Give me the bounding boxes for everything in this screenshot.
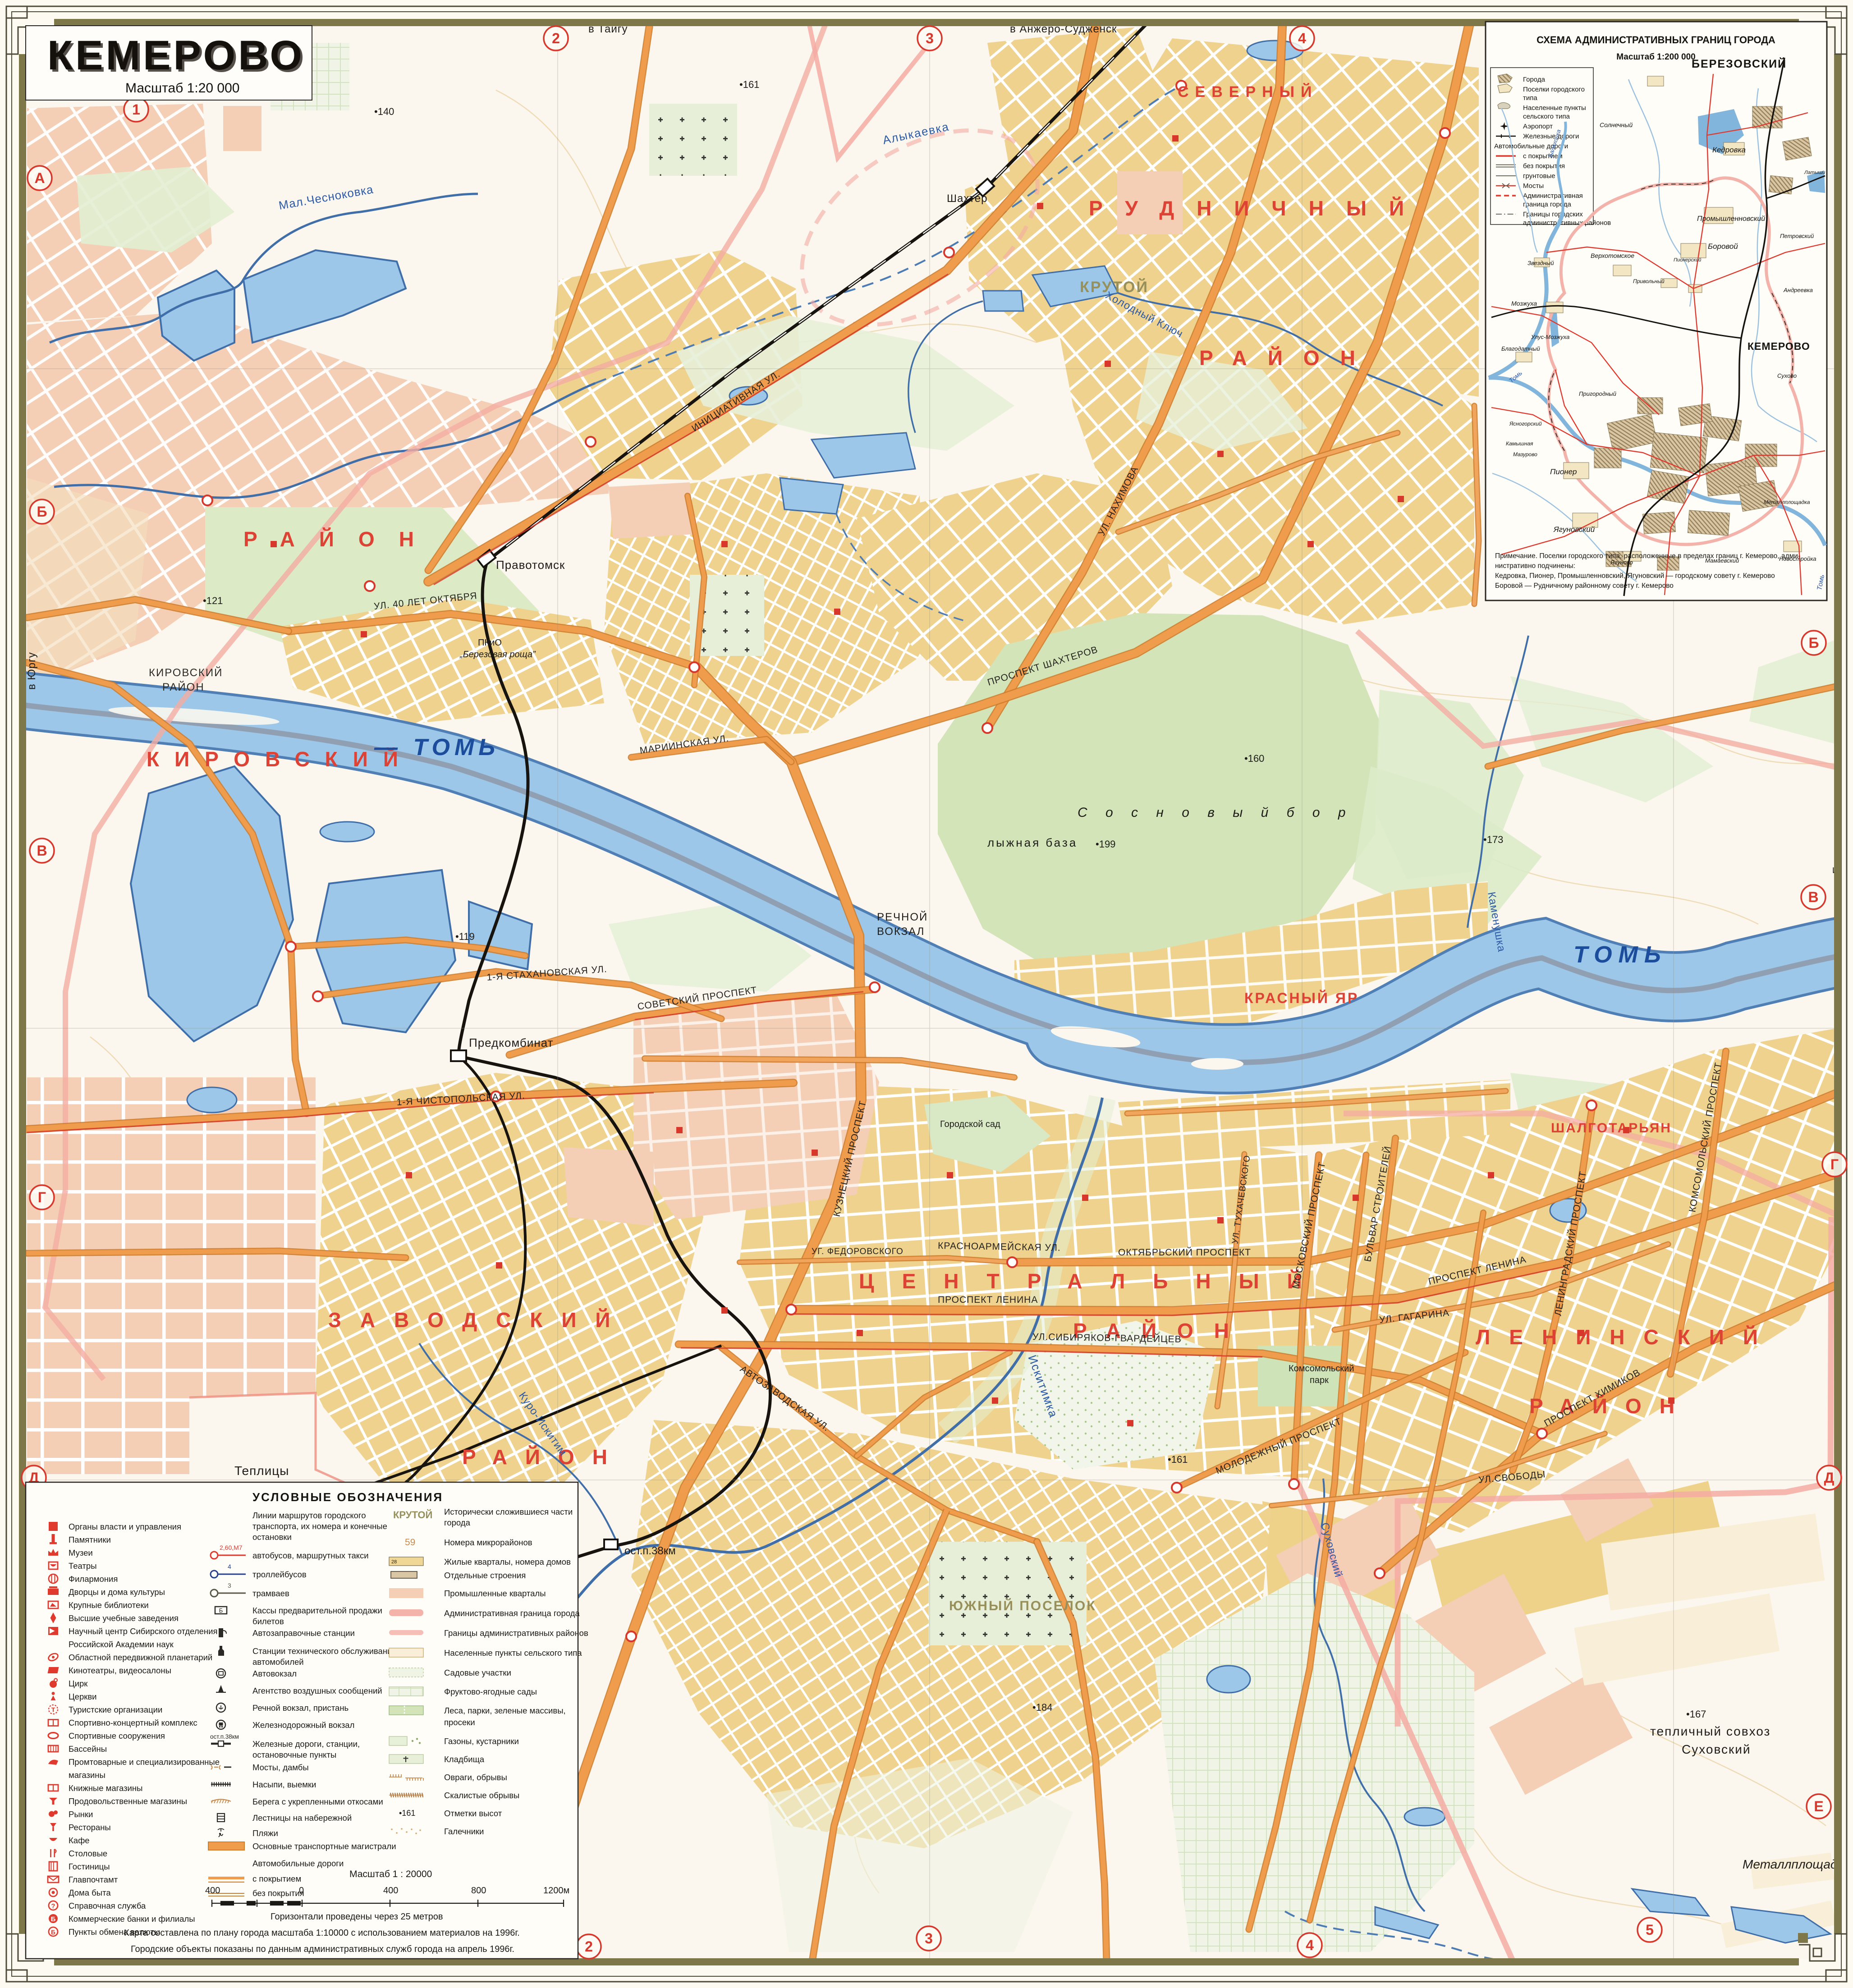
svg-text:•121: •121 [203,595,223,606]
svg-text:4: 4 [1306,1937,1314,1953]
svg-text:Благодатный: Благодатный [1501,345,1540,352]
svg-text:административных районов: административных районов [1523,219,1611,227]
svg-text:Латыши: Латыши [1804,170,1825,175]
svg-text:В: В [37,843,47,859]
svg-text:Шахтер: Шахтер [947,192,988,205]
svg-text:Т: Т [51,1706,55,1713]
svg-text:Городской сад: Городской сад [940,1119,1000,1129]
svg-text:Туристские организации: Туристские организации [69,1705,162,1714]
svg-text:Областной передвижной планетар: Областной передвижной планетарий [69,1653,212,1662]
svg-text:УСЛОВНЫЕ ОБОЗНАЧЕНИЯ: УСЛОВНЫЕ ОБОЗНАЧЕНИЯ [252,1490,443,1504]
svg-text:Населенные пункты сельского ти: Населенные пункты сельского типа [444,1648,582,1658]
svg-text:РАЙОН: РАЙОН [1199,346,1376,370]
svg-text:Масштаб 1 : 20000: Масштаб 1 : 20000 [349,1869,432,1879]
svg-text:Станции технического обслужива: Станции технического обслуживания [252,1646,396,1656]
svg-text:КЕМЕРОВО: КЕМЕРОВО [47,32,305,78]
svg-text:лыжная база: лыжная база [987,836,1078,849]
svg-text:„Березовая роща”: „Березовая роща” [459,650,536,660]
svg-text:Д: Д [1824,1470,1835,1486]
svg-text:2,60,М7: 2,60,М7 [220,1544,243,1551]
svg-text:Линии маршрутов городского: Линии маршрутов городского [252,1511,366,1520]
svg-text:Дворцы и дома культуры: Дворцы и дома культуры [69,1587,165,1597]
svg-text:4: 4 [228,1563,231,1570]
svg-text:с покрытием: с покрытием [252,1874,301,1883]
svg-text:УГ. ФЕДОРОВСКОГО: УГ. ФЕДОРОВСКОГО [812,1247,904,1256]
svg-text:А: А [34,170,45,186]
svg-text:Кафе: Кафе [69,1836,90,1845]
svg-text:КЕМЕРОВО: КЕМЕРОВО [1748,340,1810,352]
svg-text:с покрытием: с покрытием [1523,152,1563,160]
svg-text:Б: Б [37,504,47,520]
svg-text:•160: •160 [1244,753,1264,764]
svg-text:Российской Академии наук: Российской Академии наук [69,1640,174,1649]
svg-text:Мосты: Мосты [1523,182,1544,190]
svg-text:Промышленновский: Промышленновский [1697,215,1765,223]
svg-text:ШАЛГОТАРЬЯН: ШАЛГОТАРЬЯН [1551,1121,1672,1136]
svg-text:Спортивные сооружения: Спортивные сооружения [69,1731,165,1741]
svg-text:Железные дороги: Железные дороги [1523,133,1579,140]
svg-text:Теплицы: Теплицы [234,1464,289,1478]
svg-text:4: 4 [1298,30,1306,46]
svg-text:59: 59 [405,1537,415,1548]
svg-text:ЛЕНИНСКИЙ: ЛЕНИНСКИЙ [1476,1325,1777,1349]
svg-text:Суховский: Суховский [1682,1742,1751,1756]
svg-text:Комсомольский: Комсомольский [1289,1364,1354,1374]
svg-text:грунтовые: грунтовые [1523,172,1555,180]
svg-text:Звездный: Звездный [1527,260,1554,266]
svg-text:•199: •199 [1096,838,1115,850]
svg-text:Коммерческие банки и филиалы: Коммерческие банки и филиалы [69,1914,195,1924]
svg-text:просеки: просеки [444,1718,475,1727]
svg-text:КИРОВСКИЙ: КИРОВСКИЙ [147,747,413,771]
svg-text:Отметки высот: Отметки высот [444,1809,502,1818]
svg-text:Автомобильные дороги: Автомобильные дороги [252,1859,344,1868]
svg-text:С о с н о в ы й б о р: С о с н о в ы й б о р [1078,805,1353,820]
svg-text:Населенные пункты: Населенные пункты [1523,104,1586,112]
svg-text:Промтоварные и специализирован: Промтоварные и специализированные [69,1757,220,1767]
svg-text:Книжные магазины: Книжные магазины [69,1783,142,1793]
svg-text:В: В [1808,889,1818,905]
svg-text:— ТОМЬ: — ТОМЬ [374,734,500,760]
svg-text:Масштаб 1:20 000: Масштаб 1:20 000 [125,81,239,96]
svg-text:автобусов, маршрутных такси: автобусов, маршрутных такси [252,1551,369,1560]
svg-text:СЕВЕРНЫЙ: СЕВЕРНЫЙ [1178,83,1318,101]
svg-text:Автозаправочные станции: Автозаправочные станции [252,1628,355,1638]
svg-text:ТОМЬ: ТОМЬ [1573,942,1667,968]
svg-text:Пригородный: Пригородный [1579,390,1616,397]
svg-text:Рынки: Рынки [69,1809,93,1819]
svg-text:Основные транспортные магистра: Основные транспортные магистрали [252,1841,396,1851]
svg-text:Речной вокзал, пристань: Речной вокзал, пристань [252,1703,349,1713]
svg-text:КРУТОЙ: КРУТОЙ [393,1509,432,1521]
svg-text:типа: типа [1523,94,1537,102]
svg-text:2: 2 [552,30,560,46]
svg-text:Овраги, обрывы: Овраги, обрывы [444,1773,507,1782]
svg-text:•119: •119 [455,931,475,942]
svg-text:Агентство воздушных сообщений: Агентство воздушных сообщений [252,1686,382,1695]
svg-text:ЦЕНТРАЛЬНЫЙ: ЦЕНТРАЛЬНЫЙ [859,1269,1330,1293]
svg-text:билетов: билетов [252,1617,284,1626]
svg-text:Границы городских: Границы городских [1523,211,1583,218]
svg-text:Церкви: Церкви [69,1692,97,1701]
svg-text:Металлплощадка: Металлплощадка [1764,499,1810,505]
svg-text:Кедровка: Кедровка [1712,146,1746,154]
svg-text:Поселки городского: Поселки городского [1523,86,1585,93]
svg-text:0: 0 [299,1886,304,1896]
svg-text:транспорта, их номера и конечн: транспорта, их номера и конечные [252,1521,387,1531]
svg-text:магазины: магазины [69,1770,105,1780]
svg-text:Промышленные кварталы: Промышленные кварталы [444,1589,546,1598]
svg-text:остановочные пункты: остановочные пункты [252,1750,336,1759]
svg-text:Музеи: Музеи [69,1548,93,1557]
svg-text:Лестницы на набережной: Лестницы на набережной [252,1813,352,1823]
svg-text:Садовые участки: Садовые участки [444,1668,511,1677]
svg-text:РУДНИЧНЫЙ: РУДНИЧНЫЙ [1089,197,1426,220]
svg-text:Крупные библиотеки: Крупные библиотеки [69,1600,149,1610]
svg-text:•167: •167 [1686,1709,1706,1720]
svg-text:400: 400 [383,1886,398,1896]
svg-text:без покрытия: без покрытия [252,1888,304,1898]
svg-text:ЮЖНЫЙ ПОСЕЛОК: ЮЖНЫЙ ПОСЕЛОК [949,1598,1096,1613]
svg-text:Б: Б [219,1607,223,1614]
svg-text:Жилые кварталы, номера домов: Жилые кварталы, номера домов [444,1557,571,1567]
svg-text:3: 3 [228,1582,231,1589]
svg-text:Цирк: Цирк [69,1679,88,1688]
svg-text:Фруктово-ягодные сады: Фруктово-ягодные сады [444,1687,537,1696]
svg-text:•184: •184 [1032,1702,1052,1713]
svg-text:Берега с укрепленными откосами: Берега с укрепленными откосами [252,1797,383,1806]
svg-text:2: 2 [585,1938,593,1955]
svg-text:Горизонтали проведены через 25: Горизонтали проведены через 25 метров [271,1912,443,1922]
svg-text:Галечники: Галечники [444,1827,484,1836]
svg-text:Пионерский: Пионерский [1674,257,1701,263]
svg-text:парк: парк [1310,1375,1329,1385]
svg-text:РАЙОН: РАЙОН [243,527,438,551]
svg-text:Карта составлена по плану горо: Карта составлена по плану города масштаб… [124,1928,520,1938]
svg-text:Административная: Административная [1523,192,1583,200]
svg-text:Административная граница город: Административная граница города [444,1608,580,1618]
svg-text:400: 400 [205,1886,220,1896]
svg-text:сельского типа: сельского типа [1523,113,1570,120]
svg-text:Границы административных район: Границы административных районов [444,1628,588,1638]
svg-text:Масштаб 1:200 000: Масштаб 1:200 000 [1616,52,1696,62]
svg-text:Научный центр Сибирского отдел: Научный центр Сибирского отделения [69,1626,218,1636]
svg-text:Железнодорожный вокзал: Железнодорожный вокзал [252,1720,354,1730]
svg-text:Автовокзал: Автовокзал [252,1669,297,1678]
svg-text:автомобилей: автомобилей [252,1657,304,1667]
svg-text:РЕЧНОЙ: РЕЧНОЙ [877,911,928,923]
svg-text:ОКТЯБРЬСКИЙ ПРОСПЕКТ: ОКТЯБРЬСКИЙ ПРОСПЕКТ [1118,1247,1251,1258]
svg-text:ост.п.38км: ост.п.38км [210,1733,239,1740]
svg-text:Ягуново: Ягуново [1610,559,1633,566]
svg-text:Насыпи, выемки: Насыпи, выемки [252,1780,316,1789]
svg-text:Памятники: Памятники [69,1535,111,1544]
svg-text:Б: Б [1809,635,1819,651]
svg-text:Гостиницы: Гостиницы [69,1862,110,1871]
svg-text:Мозжуха: Мозжуха [1511,300,1537,307]
svg-text:5: 5 [1646,1922,1654,1938]
svg-text:Г: Г [38,1189,46,1205]
svg-text:Отдельные строения: Отдельные строения [444,1571,526,1580]
svg-text:РАЙОН: РАЙОН [162,681,205,693]
svg-text:Театры: Театры [69,1561,97,1571]
svg-text:Бассейны: Бассейны [69,1744,107,1754]
svg-text:Правотомск: Правотомск [496,558,565,572]
svg-text:КИРОВСКИЙ: КИРОВСКИЙ [149,666,223,679]
svg-text:Верхотомское: Верхотомское [1591,252,1634,259]
svg-text:Мазурово: Мазурово [1513,451,1537,458]
svg-text:•161: •161 [399,1809,415,1818]
svg-text:Пляжи: Пляжи [252,1828,278,1838]
svg-text:Пионер: Пионер [1550,467,1577,476]
svg-text:•161: •161 [739,79,759,90]
svg-text:Леса, парки, зеленые массивы,: Леса, парки, зеленые массивы, [444,1706,566,1715]
svg-text:Городские объекты показаны по: Городские объекты показаны по данным адм… [131,1944,514,1954]
svg-text:города: города [444,1518,471,1527]
svg-text:Примечание. Поселки городского: Примечание. Поселки городского типа, рас… [1495,552,1800,560]
svg-text:Кладбища: Кладбища [444,1754,485,1764]
svg-text:ВОКЗАЛ: ВОКЗАЛ [877,925,925,938]
svg-text:Газоны, кустарники: Газоны, кустарники [444,1736,519,1746]
svg-text:Аэропорт: Аэропорт [1523,123,1553,130]
svg-text:1: 1 [132,101,140,118]
svg-text:Привольный: Привольный [1633,278,1665,284]
svg-text:РАЙОН: РАЙОН [462,1445,625,1469]
svg-text:Сухово: Сухово [1777,372,1797,379]
svg-text:Спортивно-концертный комплекс: Спортивно-концертный комплекс [69,1718,197,1727]
svg-text:Главпочтамт: Главпочтамт [69,1875,118,1884]
svg-text:Исторически сложившиеся части: Исторически сложившиеся части [444,1507,573,1516]
svg-text:КРАСНЫЙ ЯР: КРАСНЫЙ ЯР [1244,990,1359,1006]
svg-text:остановки: остановки [252,1532,292,1542]
svg-text:Номера микрорайонов: Номера микрорайонов [444,1538,532,1547]
svg-text:троллейбусов: троллейбусов [252,1570,307,1579]
svg-text:Высшие учебные заведения: Высшие учебные заведения [69,1613,179,1623]
svg-text:Скалистые обрывы: Скалистые обрывы [444,1791,519,1800]
svg-text:Петровский: Петровский [1780,233,1814,239]
svg-text:Продовольственные магазины: Продовольственные магазины [69,1796,187,1806]
svg-text:Кедровка, Пионер, Промышленнов: Кедровка, Пионер, Промышленновский, Ягун… [1495,572,1775,580]
svg-text:ост.п.38км: ост.п.38км [624,1545,676,1557]
svg-text:28: 28 [391,1559,397,1565]
svg-text:Солнечный: Солнечный [1600,121,1633,128]
svg-text:Кассы предварительной продажи: Кассы предварительной продажи [252,1606,382,1615]
svg-text:?: ? [51,1902,55,1910]
svg-text:Б: Б [51,1929,55,1936]
svg-text:Андреевка: Андреевка [1783,287,1813,293]
svg-text:Рестораны: Рестораны [69,1823,111,1832]
svg-text:3: 3 [925,1930,933,1947]
svg-text:Справочная служба: Справочная служба [69,1901,146,1910]
svg-text:ПРОСПЕКТ ЛЕНИНА: ПРОСПЕКТ ЛЕНИНА [938,1295,1038,1305]
svg-text:Боровой — Рудничному районному: Боровой — Рудничному районному совету г.… [1495,582,1674,590]
svg-text:Дома быта: Дома быта [69,1888,111,1897]
svg-text:нистративно подчинены:: нистративно подчинены: [1495,562,1575,570]
svg-text:КРАСНОАРМЕЙСКАЯ УЛ.: КРАСНОАРМЕЙСКАЯ УЛ. [938,1240,1061,1253]
svg-text:СХЕМА АДМИНИСТРАТИВНЫХ ГРАНИЦ: СХЕМА АДМИНИСТРАТИВНЫХ ГРАНИЦ ГОРОДА [1537,34,1775,46]
svg-text:Предкомбинат: Предкомбинат [469,1036,554,1049]
svg-text:•173: •173 [1483,834,1503,845]
svg-text:3: 3 [926,30,934,46]
svg-text:Ясногорский: Ясногорский [1509,421,1542,427]
svg-text:Филармония: Филармония [69,1574,118,1584]
svg-text:Боровой: Боровой [1708,242,1738,251]
svg-text:Г: Г [1830,1156,1839,1173]
svg-text:трамваев: трамваев [252,1589,289,1598]
svg-text:1200м: 1200м [543,1886,569,1896]
svg-text:Мосты, дамбы: Мосты, дамбы [252,1763,309,1772]
svg-text:Б: Б [51,1915,56,1923]
svg-text:Ягуновский: Ягуновский [1553,525,1595,534]
svg-text:•140: •140 [374,106,394,117]
svg-text:тепличный совхоз: тепличный совхоз [1650,1724,1770,1738]
svg-text:Города: Города [1523,76,1546,83]
svg-text:Улус-Мозжуха: Улус-Мозжуха [1531,334,1569,340]
svg-text:в Юргу: в Юргу [26,652,38,690]
svg-text:•161: •161 [1168,1454,1188,1465]
svg-text:Железные дороги, станции,: Железные дороги, станции, [252,1739,360,1749]
svg-text:ПКиО: ПКиО [478,638,502,648]
svg-text:Столовые: Столовые [69,1849,107,1858]
svg-text:800: 800 [471,1886,486,1896]
svg-text:Е: Е [1814,1798,1823,1814]
svg-text:ЗАВОДСКИЙ: ЗАВОДСКИЙ [328,1308,629,1332]
svg-text:Камышная: Камышная [1506,440,1533,447]
svg-text:Кинотеатры, видеосалоны: Кинотеатры, видеосалоны [69,1666,171,1675]
svg-text:Органы власти и управления: Органы власти и управления [69,1522,181,1531]
svg-text:БЕРЕЗОВСКИЙ: БЕРЕЗОВСКИЙ [1692,57,1787,70]
